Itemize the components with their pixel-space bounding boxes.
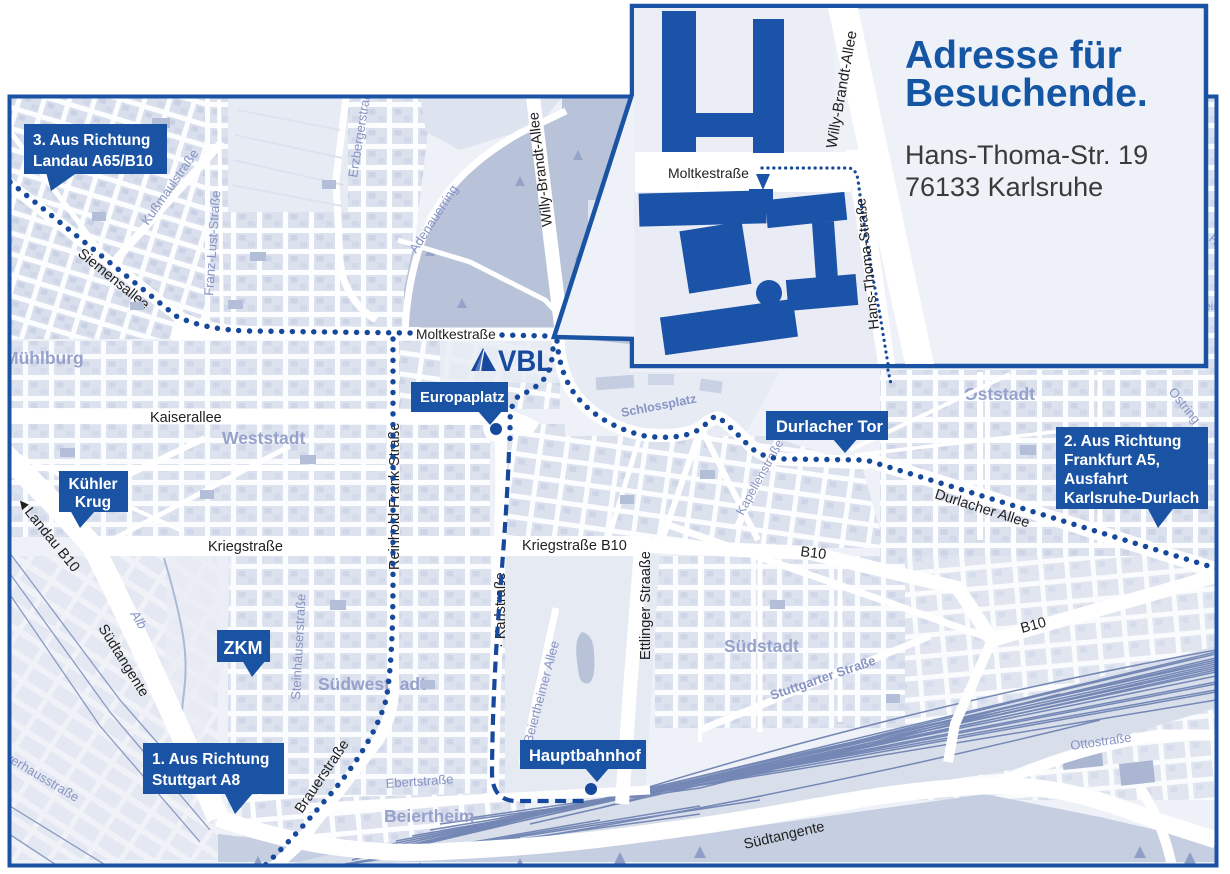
svg-text:VBL: VBL [498, 345, 553, 378]
svg-text:Kühler: Kühler [68, 476, 117, 493]
svg-text:Oststadt: Oststadt [964, 384, 1035, 404]
svg-text:Besuchende.: Besuchende. [905, 72, 1148, 115]
svg-text:Ausfahrt: Ausfahrt [1064, 471, 1128, 488]
svg-text:B10: B10 [800, 544, 828, 563]
svg-text:Kriegstraße B10: Kriegstraße B10 [522, 538, 627, 554]
svg-text:ZKM: ZKM [224, 638, 263, 658]
svg-text:Beiertheim: Beiertheim [384, 806, 474, 826]
svg-text:Moltkestraße: Moltkestraße [416, 327, 496, 342]
svg-text:Europaplatz: Europaplatz [420, 390, 505, 406]
svg-text:Karlsruhe-Durlach: Karlsruhe-Durlach [1064, 490, 1199, 507]
svg-text:Stuttgart A8: Stuttgart A8 [152, 772, 240, 789]
svg-text:Mühlburg: Mühlburg [4, 348, 84, 368]
svg-text:Frankfurt A5,: Frankfurt A5, [1064, 452, 1160, 469]
svg-text:Adresse für: Adresse für [905, 34, 1122, 77]
svg-text:3. Aus Richtung: 3. Aus Richtung [33, 132, 150, 149]
svg-text:Südstadt: Südstadt [724, 636, 799, 656]
svg-text:Landau A65/B10: Landau A65/B10 [33, 153, 153, 170]
svg-text:Krug: Krug [75, 494, 111, 511]
svg-text:Ettlinger Straaße: Ettlinger Straaße [638, 551, 654, 660]
svg-text:Hans-Thoma-Str. 19: Hans-Thoma-Str. 19 [905, 140, 1148, 170]
svg-text:Hauptbahnhof: Hauptbahnhof [529, 747, 641, 765]
svg-text:Südwest adt: Südwest adt [318, 674, 426, 694]
svg-text:Kaiserallee: Kaiserallee [150, 410, 222, 426]
svg-text:2. Aus Richtung: 2. Aus Richtung [1064, 433, 1181, 450]
svg-text:Moltkestraße: Moltkestraße [668, 165, 749, 181]
svg-text:Durlacher Tor: Durlacher Tor [776, 418, 884, 436]
svg-text:Kriegstraße: Kriegstraße [208, 539, 283, 555]
svg-text:76133 Karlsruhe: 76133 Karlsruhe [905, 172, 1103, 202]
svg-text:Weststadt: Weststadt [222, 428, 305, 448]
svg-text:1. Aus Richtung: 1. Aus Richtung [152, 751, 269, 768]
